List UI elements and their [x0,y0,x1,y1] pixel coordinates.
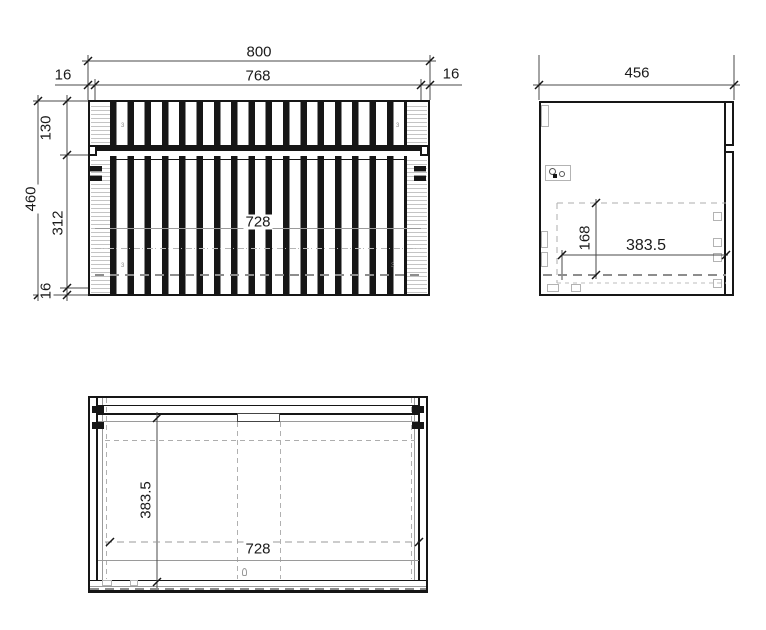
drawing-sheet: 3 3 3 3 [0,0,766,630]
side-drawer-front-edge [724,101,734,146]
front-drawer-slats [110,102,407,145]
side-edge-detail [541,231,548,248]
front-dim-overall-width: 800 [244,45,273,60]
plan-side-dashed-left [106,398,107,579]
plan-center-dashed-left [237,422,238,579]
side-inner-detail [713,212,722,221]
plan-front-inner-line [98,560,419,561]
front-divider-rail [95,145,421,151]
side-inner-detail [713,279,722,288]
plan-center-dashed-right [280,422,281,579]
front-dim-drawer-height: 130 [39,113,54,142]
drill-mark: 3 [391,263,394,269]
plan-side-dashed-right [411,398,412,579]
plan-bottom-detail [130,580,138,586]
side-bracket-hole-2 [559,171,565,177]
plan-corner-bracket-left [92,404,104,432]
plan-center-notch [237,413,280,422]
plan-back-rail-line-1 [98,405,418,406]
plan-keyhole-mark [242,568,247,576]
front-divider-notch-right [420,145,429,156]
front-hinge-left [90,166,102,181]
plan-front-rail-line-2 [90,586,426,587]
side-dim-inner-depth: 383.5 [624,238,668,254]
front-dim-gap-left: 16 [53,68,74,83]
front-door-top-joint-line [110,159,407,160]
front-dim-inner-width: 728 [243,215,272,230]
side-bottom-detail [547,284,559,292]
side-door-front-edge [724,151,734,296]
side-carcass-outline [539,101,726,296]
plan-dim-inner-width: 728 [243,542,272,557]
side-inner-detail [713,238,722,247]
side-dim-depth: 456 [622,66,651,81]
side-bottom-detail [571,284,581,292]
plan-hidden-line-top [105,440,415,441]
drill-mark: 3 [396,123,399,129]
side-edge-detail [541,252,548,267]
side-dim-inner-height: 168 [578,223,593,252]
front-dim-door-height: 312 [51,208,66,237]
front-dim-gap-right: 16 [441,67,462,82]
side-bracket-pin [553,174,557,178]
front-hidden-line-mid [95,248,421,249]
plan-front-hidden-band [90,588,426,590]
front-divider-notch-left [88,145,97,156]
plan-front-rail-line [90,580,426,581]
front-drawer-end-panel-right [407,103,427,145]
front-dim-panel-width: 768 [243,69,272,84]
front-hidden-bottom-panel-line [95,274,421,276]
plan-dim-inner-depth: 383.5 [139,479,154,521]
front-drawer-end-panel-left [91,103,110,145]
plan-bottom-detail [102,580,112,586]
side-edge-detail [541,105,549,127]
drill-mark: 3 [121,123,124,129]
front-dim-overall-height: 460 [24,184,39,213]
drill-mark: 3 [121,263,124,269]
side-inner-detail [713,253,722,262]
front-hinge-right [414,166,426,181]
front-dim-bottom-offset: 16 [39,281,54,302]
plan-corner-bracket-right [412,404,424,432]
